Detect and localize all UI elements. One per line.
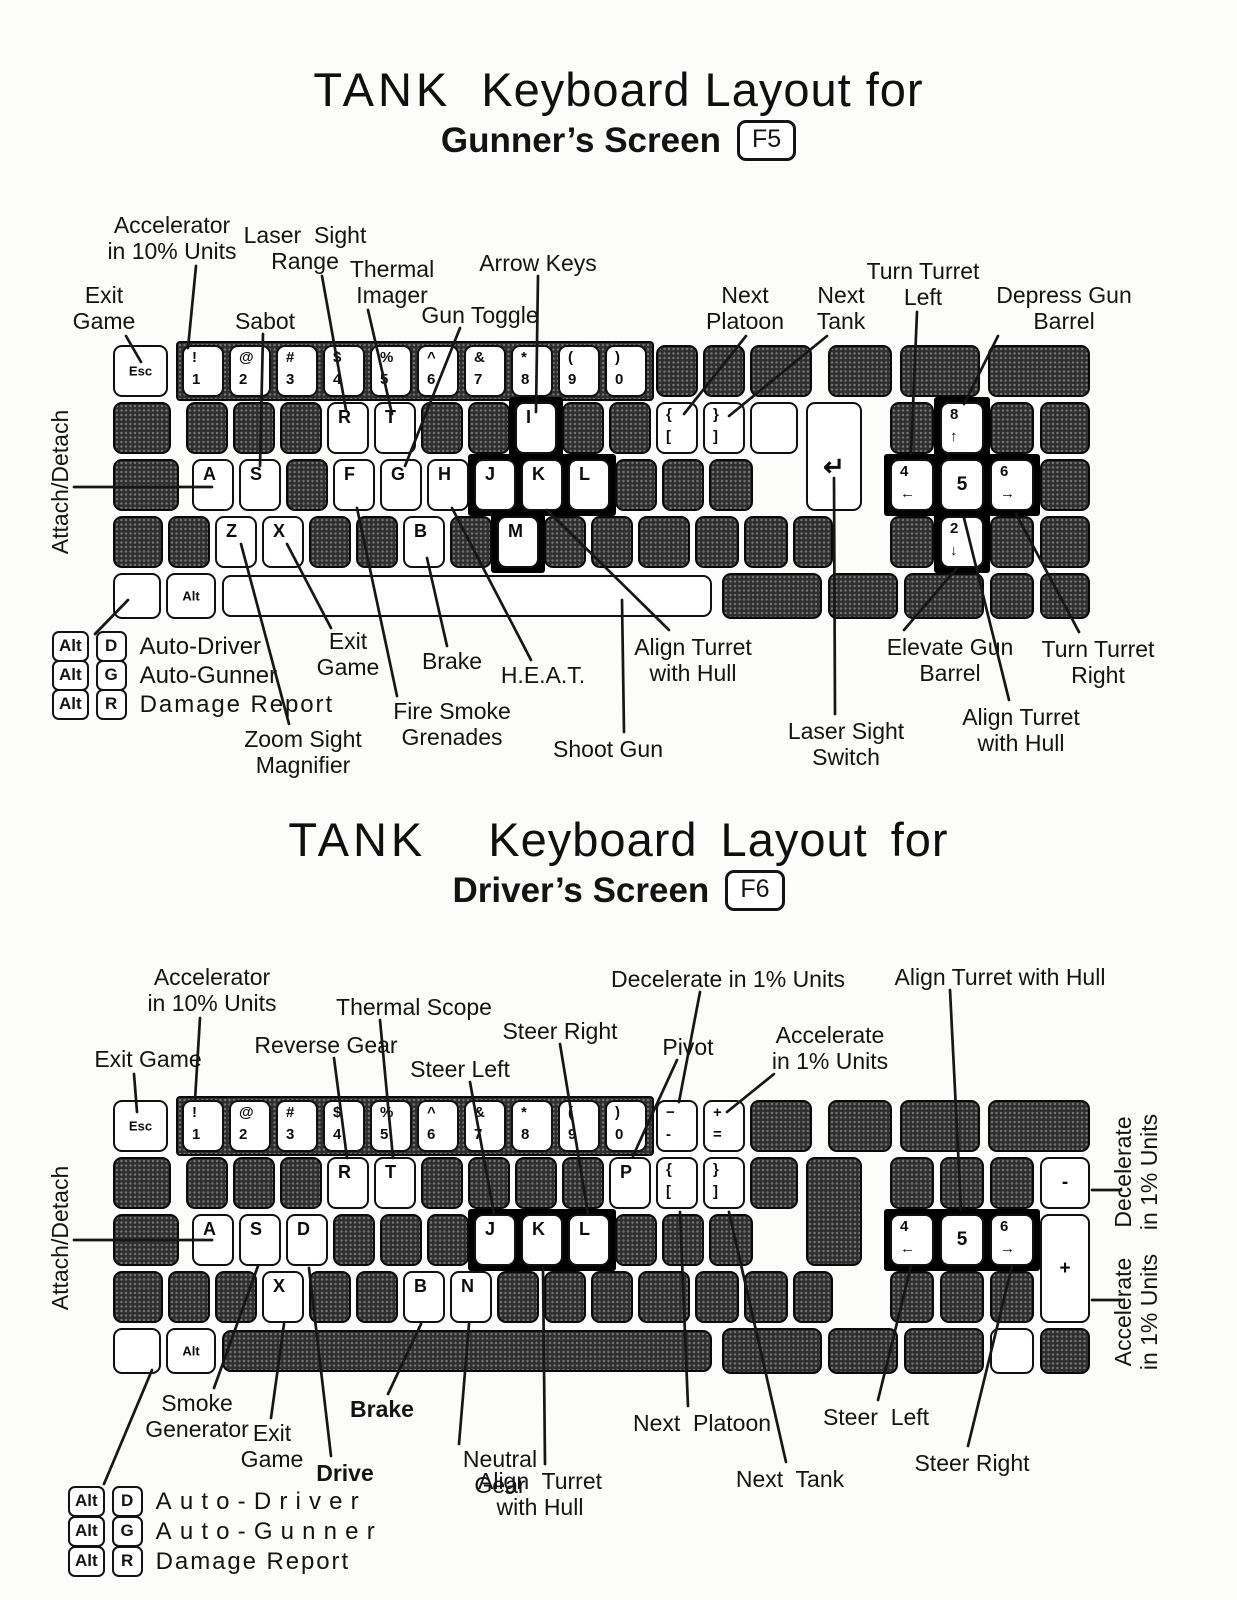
label-exit-game-bottom: Exit Game (317, 628, 380, 680)
alt-combo-g: AltGAuto-Gunner (68, 1516, 383, 1547)
key-dark (890, 1157, 934, 1209)
key-a: A (192, 1214, 234, 1266)
key-r: R (327, 1157, 369, 1209)
key-8: 8↑ (940, 402, 984, 454)
key-n: N (450, 1271, 492, 1323)
key-x: X (262, 516, 304, 568)
letter-keycap: D (96, 631, 127, 662)
label-reverse-gear: Reverse Gear (254, 1032, 397, 1058)
gunner-page-title: TANKKeyboard Layout for (0, 62, 1237, 117)
label-align-turret-bottom-d: Align Turret with Hull (478, 1468, 602, 1520)
key-sym: + (1040, 1214, 1090, 1323)
key-dark (186, 402, 228, 454)
key-x: X (262, 1271, 304, 1323)
label-steer-left-top: Steer Left (410, 1056, 510, 1082)
key-sym: ^6 (417, 1100, 459, 1152)
key-sym: #3 (276, 1100, 318, 1152)
key-dark (309, 516, 351, 568)
key-dark (750, 345, 812, 397)
key-sym: %5 (370, 1100, 412, 1152)
key-dark (609, 402, 651, 454)
key-b: B (403, 1271, 445, 1323)
key-t: T (374, 402, 416, 454)
key-dark (233, 1157, 275, 1209)
key-dark (280, 402, 322, 454)
letter-keycap: R (112, 1546, 143, 1577)
label-exit-game-bottom-d: Exit Game (241, 1420, 304, 1472)
label-gun-toggle: Gun Toggle (421, 302, 538, 328)
key-sym: *8 (511, 1100, 553, 1152)
key-s: S (239, 1214, 281, 1266)
gunner-subtitle-text: Gunner’s Screen (441, 121, 721, 161)
label-attach-detach: Attach/Detach (47, 410, 73, 554)
gunner-title-rest: Keyboard Layout for (481, 63, 923, 116)
label-drive: Drive (316, 1460, 374, 1486)
key-dark (828, 1100, 892, 1152)
key-5: 5 (940, 1214, 984, 1266)
key-dark (890, 402, 934, 454)
key-d: D (286, 1214, 328, 1266)
label-shoot-gun: Shoot Gun (553, 736, 663, 762)
alt-keycap: Alt (68, 1486, 105, 1517)
key-h: H (427, 459, 469, 511)
key-s: S (239, 459, 281, 511)
key-sym: )0 (605, 1100, 647, 1152)
key-blank (990, 1328, 1034, 1374)
label-align-turret-top: Align Turret with Hull (895, 964, 1106, 990)
key-dark (695, 1271, 739, 1323)
key-dark (1040, 1328, 1090, 1374)
key-r: R (327, 402, 369, 454)
gunner-subtitle: Gunner’s Screen F5 (0, 120, 1237, 161)
letter-keycap: G (96, 660, 127, 691)
key-dark (828, 1328, 898, 1374)
label-zoom-sight-magnifier: Zoom Sight Magnifier (244, 726, 362, 778)
label-exit-game-d: Exit Game (94, 1046, 201, 1072)
key-dark (113, 402, 171, 454)
key-j: J (474, 459, 516, 511)
key-dark (113, 459, 179, 511)
key-blank (222, 575, 712, 617)
key-t: T (374, 1157, 416, 1209)
label-elevate-gun-barrel: Elevate Gun Barrel (887, 634, 1014, 686)
key-dark (168, 1271, 210, 1323)
key-dark (1040, 402, 1090, 454)
label-accelerate-side: Accelerate in 1% Units (1110, 1254, 1162, 1370)
key-dark (562, 1157, 604, 1209)
key-dark (900, 1100, 980, 1152)
key-sym: (9 (558, 345, 600, 397)
key-dark (638, 516, 690, 568)
key-5: 5 (940, 459, 984, 511)
label-thermal-imager: Thermal Imager (350, 256, 434, 308)
label-exit-game-top: Exit Game (73, 282, 136, 334)
key-dark (988, 345, 1090, 397)
key-sym: *8 (511, 345, 553, 397)
key-dark (638, 1271, 690, 1323)
key-dark (113, 516, 163, 568)
key-esc: Esc (113, 1100, 168, 1152)
alt-keycap: Alt (52, 689, 89, 720)
key-sym: @2 (229, 345, 271, 397)
driver-subtitle-text: Driver’s Screen (452, 871, 709, 911)
key-dark (744, 516, 788, 568)
key-dark (750, 1100, 812, 1152)
key-sym: {[ (656, 402, 698, 454)
key-dark (709, 1214, 753, 1266)
key-dark (828, 573, 898, 619)
key-a: A (192, 459, 234, 511)
label-attach-detach-d: Attach/Detach (47, 1166, 73, 1310)
key-dark (904, 1328, 984, 1374)
combo-label: Auto-Driver (140, 633, 261, 661)
alt-combo-g: AltGAuto-Gunner (52, 660, 277, 691)
key-l: L (568, 1214, 610, 1266)
key-dark (656, 345, 698, 397)
letter-keycap: G (112, 1516, 143, 1547)
key-dark (793, 516, 833, 568)
label-thermal-scope: Thermal Scope (336, 994, 492, 1020)
key-dark (421, 1157, 463, 1209)
key-m: M (497, 516, 539, 568)
key-sym: - (1040, 1157, 1090, 1209)
key-sym: %5 (370, 345, 412, 397)
key-sym: &7 (464, 345, 506, 397)
key-dark (515, 1157, 557, 1209)
key-dark (591, 1271, 633, 1323)
key-dark (703, 345, 745, 397)
key-sym: @2 (229, 1100, 271, 1152)
key-dark (309, 1271, 351, 1323)
label-smoke-generator: Smoke Generator (145, 1390, 249, 1442)
label-depress-gun-barrel: Depress Gun Barrel (996, 282, 1132, 334)
key-sym: }] (703, 1157, 745, 1209)
key-dark (750, 1157, 798, 1209)
key-blank (750, 402, 798, 454)
key-dark (890, 516, 934, 568)
key-b: B (403, 516, 445, 568)
key-dark (280, 1157, 322, 1209)
key-2: 2↓ (940, 516, 984, 568)
key-dark (828, 345, 892, 397)
key-dark (890, 1271, 934, 1323)
key-sym: {[ (656, 1157, 698, 1209)
letter-keycap: R (96, 689, 127, 720)
key-dark (186, 1157, 228, 1209)
key-dark (468, 402, 510, 454)
key-dark (222, 1330, 712, 1372)
key-blank (113, 1328, 161, 1374)
key-z: Z (215, 516, 257, 568)
label-steer-right-bottom: Steer Right (914, 1450, 1029, 1476)
key-dark (113, 1157, 171, 1209)
combo-label: Auto-Gunner (140, 662, 277, 690)
key-dark (709, 459, 753, 511)
key-dark (793, 1271, 833, 1323)
key-dark (356, 516, 398, 568)
key-sym: }] (703, 402, 745, 454)
label-accelerator-10pct-d: Accelerator in 10% Units (147, 964, 276, 1016)
key-dark (450, 516, 492, 568)
key-dark (988, 1100, 1090, 1152)
key-dark (233, 402, 275, 454)
key-dark (695, 516, 739, 568)
label-next-platoon-d: Next Platoon (633, 1410, 771, 1436)
label-turn-turret-right: Turn Turret Right (1042, 636, 1155, 688)
key-alt: Alt (166, 573, 216, 619)
combo-label: Damage Report (156, 1548, 350, 1576)
key-dark (544, 1271, 586, 1323)
label-laser-sight-range: Laser Sight Range (244, 222, 367, 274)
key-dark (722, 1328, 822, 1374)
alt-keycap: Alt (52, 660, 89, 691)
key-i: I (515, 402, 557, 454)
key-dark (544, 516, 586, 568)
label-next-tank: Next Tank (817, 282, 866, 334)
driver-title-rest: Keyboard Layout for (488, 813, 948, 866)
alt-combo-r: AltRDamage Report (52, 689, 334, 720)
label-pivot: Pivot (662, 1034, 713, 1060)
key-p: P (609, 1157, 651, 1209)
key-sym: )0 (605, 345, 647, 397)
alt-combo-r: AltRDamage Report (68, 1546, 350, 1577)
key-dark (562, 402, 604, 454)
key-sym: !1 (182, 1100, 224, 1152)
key-dark (1040, 573, 1090, 619)
key-4: 4← (890, 1214, 934, 1266)
key-dark (1040, 516, 1090, 568)
label-brake: Brake (422, 648, 482, 674)
key-sym: $4 (323, 1100, 365, 1152)
key-alt: Alt (166, 1328, 216, 1374)
key-dark (333, 1214, 375, 1266)
combo-label: Auto-Gunner (156, 1518, 383, 1546)
label-next-tank-d: Next Tank (736, 1466, 844, 1492)
key-sym: !1 (182, 345, 224, 397)
key-blank (113, 573, 161, 619)
label-accelerate-1pct: Accelerate in 1% Units (772, 1022, 888, 1074)
label-decelerate-1pct: Decelerate in 1% Units (611, 966, 845, 992)
key-g: G (380, 459, 422, 511)
key-dark (744, 1271, 788, 1323)
label-turn-turret-left: Turn Turret Left (867, 258, 980, 310)
label-decelerate-side: Decelerate in 1% Units (1110, 1114, 1162, 1230)
key-sym: −- (656, 1100, 698, 1152)
key-esc: Esc (113, 345, 168, 397)
key-k: K (521, 1214, 563, 1266)
combo-label: Damage Report (140, 691, 334, 719)
key-dark (722, 573, 822, 619)
key-dark (990, 516, 1034, 568)
label-heat: H.E.A.T. (501, 662, 585, 688)
key-dark (286, 459, 328, 511)
key-sym: $4 (323, 345, 365, 397)
label-align-turret-right: Align Turret with Hull (962, 704, 1080, 756)
label-next-platoon: Next Platoon (706, 282, 784, 334)
key-dark (615, 459, 657, 511)
key-dark (900, 345, 980, 397)
driver-subtitle: Driver’s Screen F6 (0, 870, 1237, 911)
key-sym: (9 (558, 1100, 600, 1152)
key-dark (591, 516, 633, 568)
label-steer-left-bottom: Steer Left (823, 1404, 929, 1430)
driver-title-word: TANK (288, 813, 426, 866)
key-dark (990, 573, 1034, 619)
key-k: K (521, 459, 563, 511)
label-steer-right-top: Steer Right (502, 1018, 617, 1044)
key-dark (940, 1271, 984, 1323)
key-dark (421, 402, 463, 454)
key-f: F (333, 459, 375, 511)
key-dark (615, 1214, 657, 1266)
key-dark (427, 1214, 469, 1266)
key-dark (904, 573, 984, 619)
f6-keycap: F6 (725, 870, 784, 911)
label-laser-sight-switch: Laser Sight Switch (788, 718, 904, 770)
key-sym: += (703, 1100, 745, 1152)
label-shoot-gun-line (622, 600, 624, 732)
key-sym: ^6 (417, 345, 459, 397)
label-accelerator-10pct: Accelerator in 10% Units (107, 212, 236, 264)
key-dark (380, 1214, 422, 1266)
label-align-turret-left: Align Turret with Hull (634, 634, 752, 686)
key-dark (940, 1157, 984, 1209)
key-j: J (474, 1214, 516, 1266)
key-dark (1040, 459, 1090, 511)
key-dark (662, 1214, 704, 1266)
alt-keycap: Alt (68, 1516, 105, 1547)
combo-label: Auto-Driver (156, 1488, 367, 1516)
key-dark (806, 1157, 862, 1266)
key-dark (113, 1271, 163, 1323)
key-sym: #3 (276, 345, 318, 397)
key-6: 6→ (990, 459, 1034, 511)
key-dark (662, 459, 704, 511)
alt-keycap: Alt (52, 631, 89, 662)
key-dark (990, 1157, 1034, 1209)
f5-keycap: F5 (737, 120, 796, 161)
letter-keycap: D (112, 1486, 143, 1517)
key-dark (356, 1271, 398, 1323)
key-dark (113, 1214, 179, 1266)
alt-keycap: Alt (68, 1546, 105, 1577)
label-fire-smoke-grenades: Fire Smoke Grenades (393, 698, 511, 750)
key-4: 4← (890, 459, 934, 511)
key-dark (990, 402, 1034, 454)
key-dark (497, 1271, 539, 1323)
label-accelerator-10pct-line (188, 266, 196, 348)
label-arrow-keys: Arrow Keys (479, 250, 597, 276)
key-6: 6→ (990, 1214, 1034, 1266)
manual-page: TANKKeyboard Layout for Gunner’s Screen … (0, 0, 1237, 1600)
driver-page-title: TANKKeyboard Layout for (0, 812, 1237, 867)
key-dark (468, 1157, 510, 1209)
key-dark (168, 516, 210, 568)
label-brake-d: Brake (350, 1396, 414, 1422)
key-dark (990, 1271, 1034, 1323)
key-sym: &7 (464, 1100, 506, 1152)
alt-combo-d: AltDAuto-Driver (52, 631, 261, 662)
key-dark (215, 1271, 257, 1323)
gunner-title-word: TANK (313, 63, 451, 116)
alt-combo-d: AltDAuto-Driver (68, 1486, 367, 1517)
key-l: L (568, 459, 610, 511)
label-sabot: Sabot (235, 308, 295, 334)
key-sym: ↵ (806, 402, 862, 511)
